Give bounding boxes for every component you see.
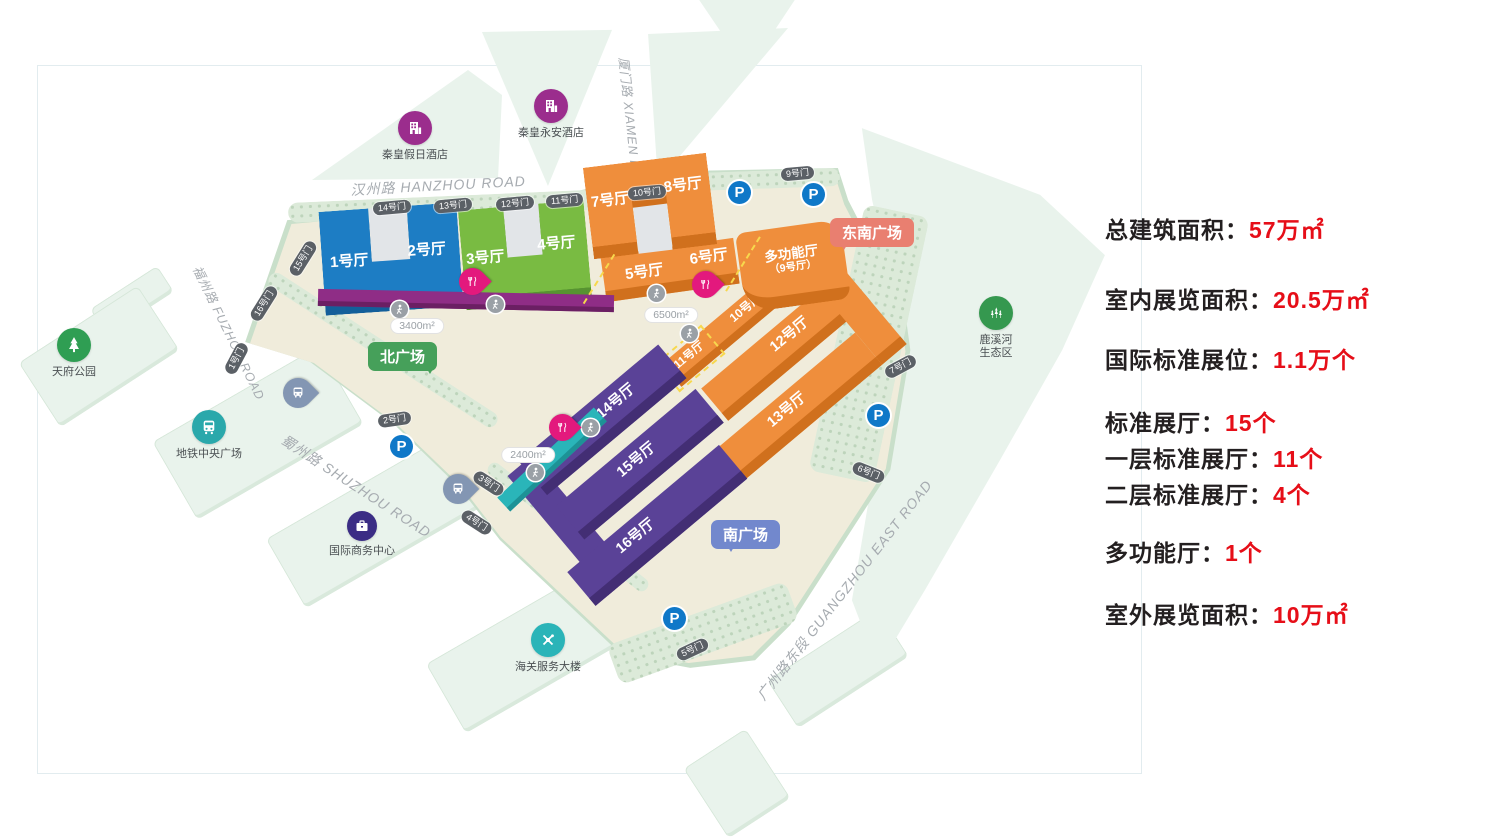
stat-second-floor-halls: 二层标准展厅：4个: [1105, 476, 1311, 510]
landmark-luxi-river: 鹿溪河 生态区: [926, 296, 1066, 360]
stat-value: 1.1万个: [1273, 347, 1356, 373]
stat-value: 1个: [1225, 540, 1263, 566]
stat-value: 10万㎡: [1273, 602, 1349, 628]
parking-icon: P: [728, 181, 751, 204]
hotel-icon: [398, 111, 432, 145]
hall-4-label: 4号厅: [536, 231, 576, 255]
landmark-label-line2: 生态区: [980, 347, 1013, 360]
bus-icon: [291, 386, 306, 401]
stat-label: 国际标准展位：: [1105, 347, 1273, 373]
fork-knife-icon: [466, 275, 479, 288]
hall-3-label: 3号厅: [465, 245, 505, 269]
stat-label: 二层标准展厅：: [1105, 482, 1273, 508]
fork-knife-icon: [699, 278, 712, 291]
hall-12-label: 12号厅: [765, 311, 813, 356]
hall-13-label: 13号厅: [762, 387, 810, 432]
bus-icon: [451, 482, 466, 497]
fork-knife-icon: [556, 421, 569, 434]
stat-value: 11个: [1273, 446, 1323, 472]
landmark-tianfu-park: 天府公园: [4, 328, 144, 379]
hall-1-label: 1号厅: [329, 249, 369, 273]
hall-7-8-block: 7号厅 8号厅: [583, 153, 717, 259]
pedestrian-icon: [391, 301, 408, 318]
landmark-label: 地铁中央广场: [176, 448, 242, 461]
southeast-plaza-label: 东南广场: [830, 218, 914, 247]
parking-icon: P: [802, 183, 825, 206]
landmark-customs-building: 海关服务大楼: [478, 623, 618, 674]
landmark-hotel-holiday: 秦皇假日酒店: [345, 111, 485, 162]
stat-standard-booths: 国际标准展位：1.1万个: [1105, 341, 1356, 375]
briefcase-icon: [347, 511, 377, 541]
stat-value: 4个: [1273, 482, 1311, 508]
stat-total-area: 总建筑面积：57万㎡: [1105, 211, 1325, 245]
area-2400: 2400m²: [501, 447, 555, 463]
landmark-label: 海关服务大楼: [515, 661, 581, 674]
hall-5-label: 5号厅: [624, 258, 665, 284]
customs-icon: [531, 623, 565, 657]
stat-outdoor-area: 室外展览面积：10万㎡: [1105, 596, 1349, 630]
stat-label: 室外展览面积：: [1105, 602, 1273, 628]
hall-15-label: 15号厅: [612, 437, 660, 482]
stat-label: 总建筑面积：: [1105, 217, 1249, 243]
landmark-label: 天府公园: [52, 366, 96, 379]
stat-value: 15个: [1225, 410, 1277, 436]
trees-icon: [979, 296, 1013, 330]
landmark-business-center: 国际商务中心: [292, 511, 432, 558]
pedestrian-icon: [648, 285, 665, 302]
tree-icon: [57, 328, 91, 362]
stat-label: 一层标准展厅：: [1105, 446, 1273, 472]
parking-icon: P: [867, 404, 890, 427]
hall-16-label: 16号厅: [611, 513, 659, 558]
pedestrian-icon: [487, 296, 504, 313]
stat-label: 室内展览面积：: [1105, 287, 1273, 313]
pedestrian-icon: [527, 464, 544, 481]
landmark-metro-plaza: 地铁中央广场: [139, 410, 279, 461]
area-6500: 6500m²: [644, 307, 698, 323]
stat-multi-function-hall: 多功能厅：1个: [1105, 534, 1263, 568]
stat-value: 20.5万㎡: [1273, 287, 1370, 313]
landmark-hotel-yongan: 秦皇永安酒店: [481, 89, 621, 140]
stat-indoor-area: 室内展览面积：20.5万㎡: [1105, 281, 1370, 315]
parking-icon: P: [663, 607, 686, 630]
stat-first-floor-halls: 一层标准展厅：11个: [1105, 440, 1323, 474]
pedestrian-icon: [582, 419, 599, 436]
pedestrian-icon: [681, 325, 698, 342]
landmark-label: 鹿溪河: [980, 334, 1013, 347]
landmark-label: 国际商务中心: [329, 545, 395, 558]
train-icon: [192, 410, 226, 444]
hall-2-label: 2号厅: [407, 237, 447, 261]
stat-standard-halls: 标准展厅：15个: [1105, 404, 1277, 438]
stat-value: 57万㎡: [1249, 217, 1325, 243]
south-plaza-label: 南广场: [711, 520, 780, 549]
north-plaza-label: 北广场: [368, 342, 437, 371]
landmark-label: 秦皇假日酒店: [382, 149, 448, 162]
parking-icon: P: [390, 435, 413, 458]
hotel-icon: [534, 89, 568, 123]
expo-map-infographic: 汉州路 HANZHOU ROAD 厦门路 XIAMEN ROAD 福州路 FUZ…: [0, 0, 1494, 840]
area-3400: 3400m²: [390, 318, 444, 334]
landmark-label: 秦皇永安酒店: [518, 127, 584, 140]
stat-label: 多功能厅：: [1105, 540, 1225, 566]
stat-label: 标准展厅：: [1105, 410, 1225, 436]
